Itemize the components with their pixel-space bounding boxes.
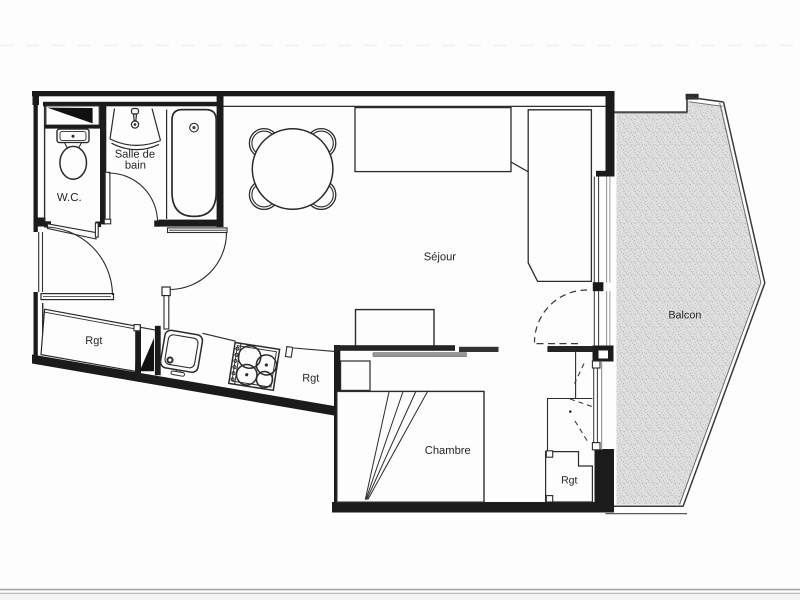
svg-text:Balcon: Balcon bbox=[668, 309, 701, 321]
svg-text:W.C.: W.C. bbox=[57, 192, 82, 204]
svg-text:bain: bain bbox=[125, 160, 146, 172]
svg-text:Rgt: Rgt bbox=[561, 474, 577, 486]
svg-text:Chambre: Chambre bbox=[425, 445, 471, 457]
svg-text:Rgt: Rgt bbox=[85, 335, 102, 347]
svg-text:Séjour: Séjour bbox=[424, 251, 457, 263]
svg-text:Rgt: Rgt bbox=[302, 372, 319, 384]
